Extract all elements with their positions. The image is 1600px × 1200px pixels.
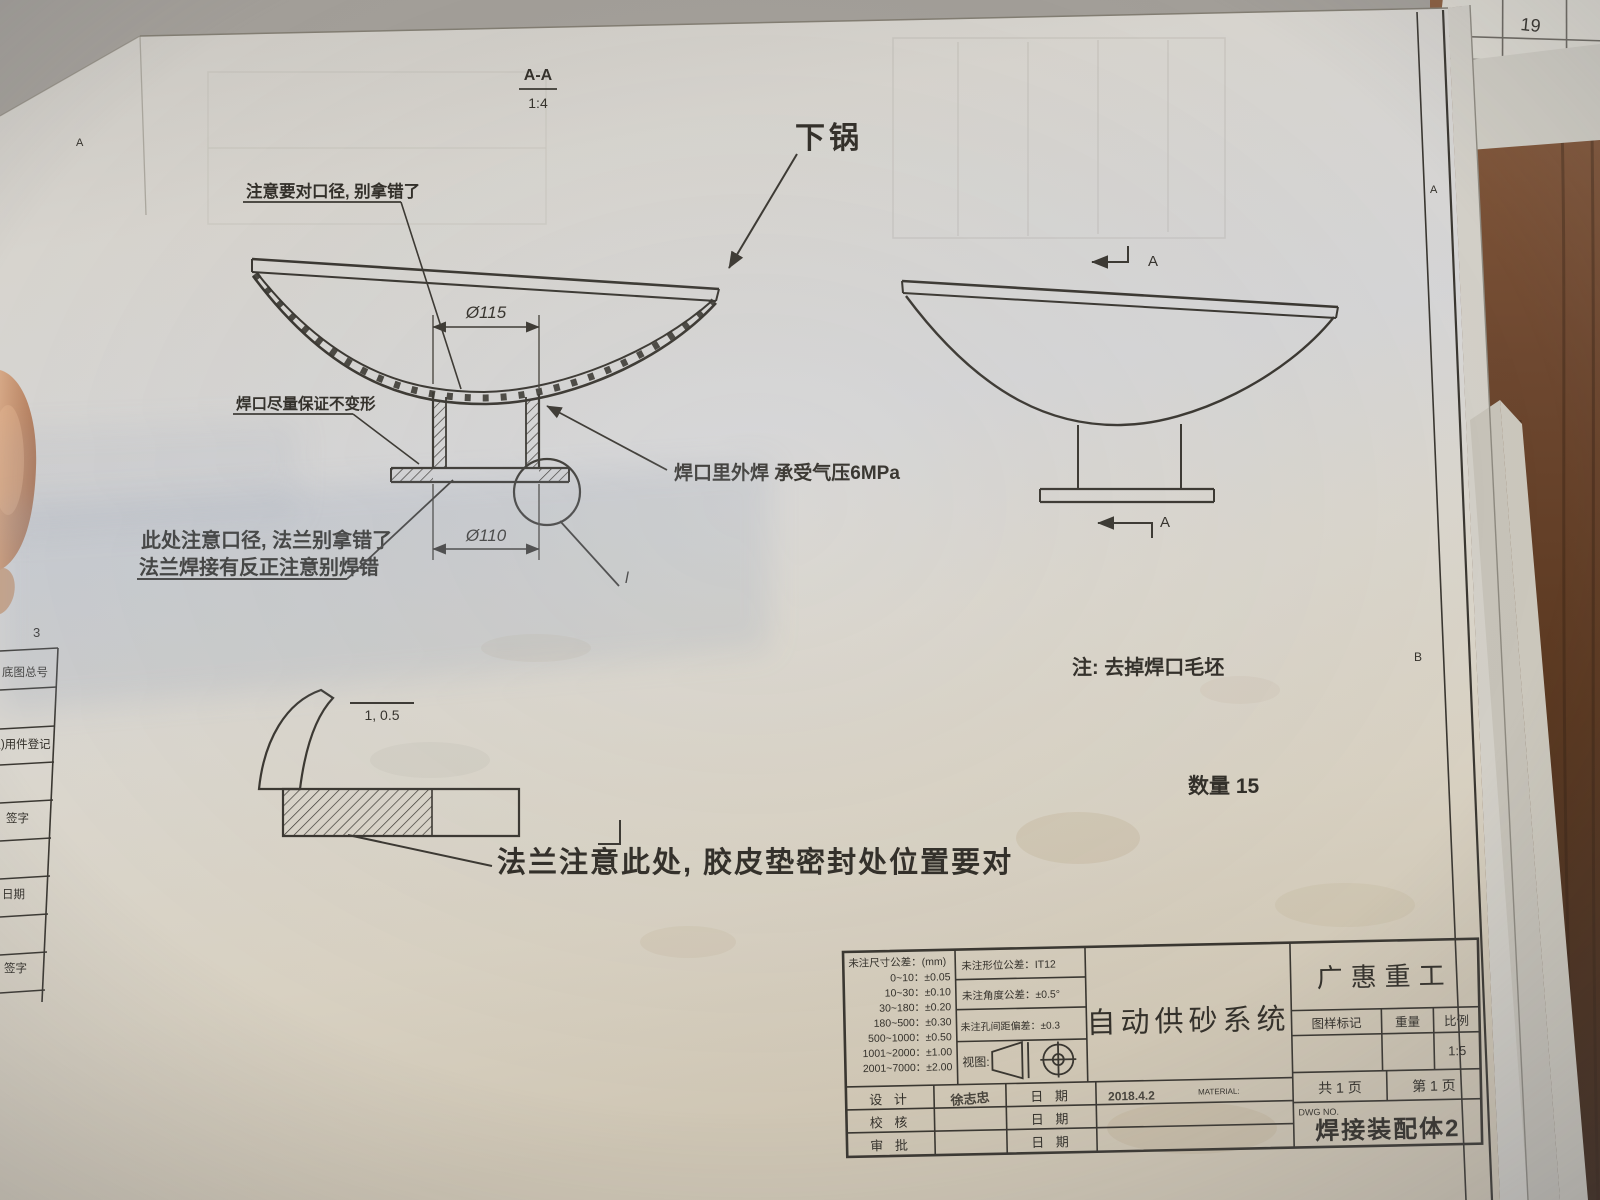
photo-of-engineering-drawing: 19 [0,0,1600,1200]
drawing-photo-canvas: 19 [0,0,1600,1200]
vignette [0,0,1600,1200]
